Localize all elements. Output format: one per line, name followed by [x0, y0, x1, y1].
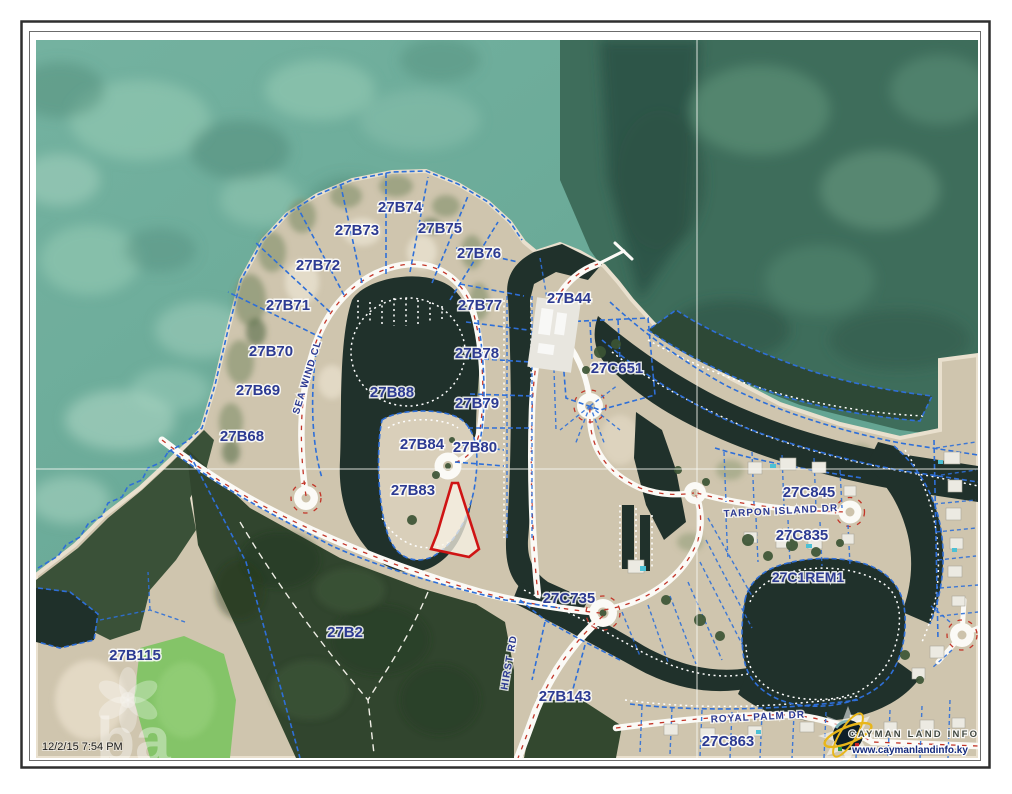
map-print-page: ba 27B74 27B73 27B75 27B72 27B76 27B71 2… — [0, 0, 1012, 794]
parcel-label-27B68: 27B68 — [220, 428, 264, 445]
canal-finger — [622, 505, 634, 569]
parcel-label-27B115: 27B115 — [109, 647, 161, 664]
parcel-label-27B73: 27B73 — [335, 222, 379, 239]
parcel-label-27C835: 27C835 — [776, 527, 829, 544]
logo-green-dot — [838, 747, 842, 751]
parcel-label-27C1REM1: 27C1REM1 — [772, 569, 845, 585]
parcel-label-27B2: 27B2 — [327, 624, 363, 641]
parcel-label-27B75: 27B75 — [418, 220, 462, 237]
parcel-label-27B78: 27B78 — [455, 345, 499, 362]
parcel-label-27C845: 27C845 — [783, 484, 836, 501]
parcel-label-27B72: 27B72 — [296, 257, 340, 274]
logo-website: www.caymanlandinfo.ky — [851, 745, 968, 756]
parcel-label-27B76: 27B76 — [457, 245, 501, 262]
parcel-label-27B84: 27B84 — [400, 436, 445, 453]
parcel-label-27B79: 27B79 — [455, 395, 499, 412]
parcel-label-27B80: 27B80 — [453, 439, 497, 456]
parcel-label-27B143: 27B143 — [539, 688, 592, 705]
parcel-label-27B83: 27B83 — [391, 482, 435, 499]
parcel-label-27B74: 27B74 — [378, 199, 423, 216]
parcel-label-27B70: 27B70 — [249, 343, 293, 360]
parcel-label-27B69: 27B69 — [236, 382, 280, 399]
parcel-label-27C735: 27C735 — [543, 590, 596, 607]
map-content: ba 27B74 27B73 27B75 27B72 27B76 27B71 2… — [0, 38, 990, 776]
parcel-label-27B71: 27B71 — [266, 297, 310, 314]
parcel-label-27B77: 27B77 — [458, 297, 502, 314]
parcel-label-27C651: 27C651 — [591, 360, 644, 377]
cadastral-map: ba 27B74 27B73 27B75 27B72 27B76 27B71 2… — [0, 0, 1012, 794]
timestamp: 12/2/15 7:54 PM — [42, 741, 123, 753]
parcel-label-27B44: 27B44 — [547, 290, 592, 307]
logo-title: CAYMAN LAND INFO — [849, 729, 979, 740]
parcel-label-27B88: 27B88 — [370, 384, 414, 401]
parcel-label-27C863: 27C863 — [702, 733, 755, 750]
